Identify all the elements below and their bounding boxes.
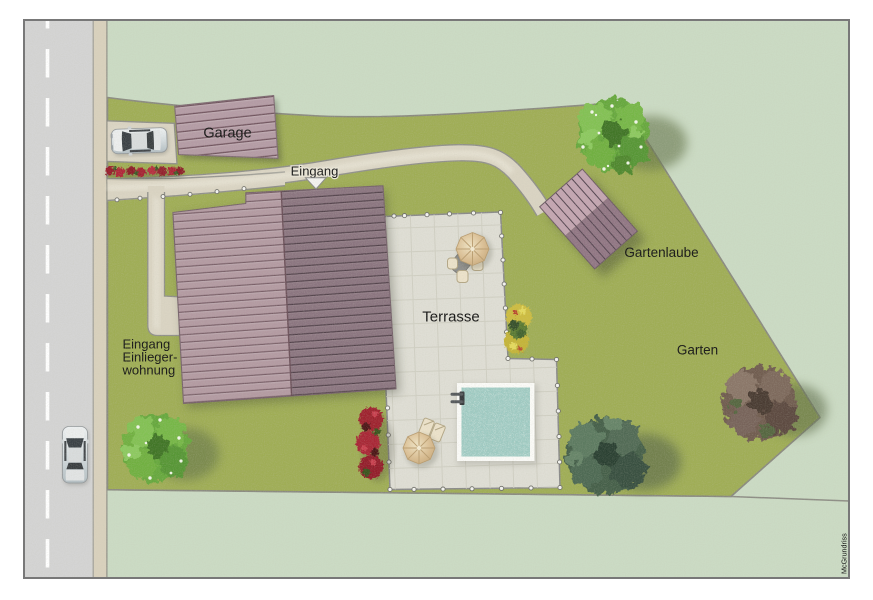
svg-text:McGrundriss: McGrundriss — [840, 533, 849, 574]
